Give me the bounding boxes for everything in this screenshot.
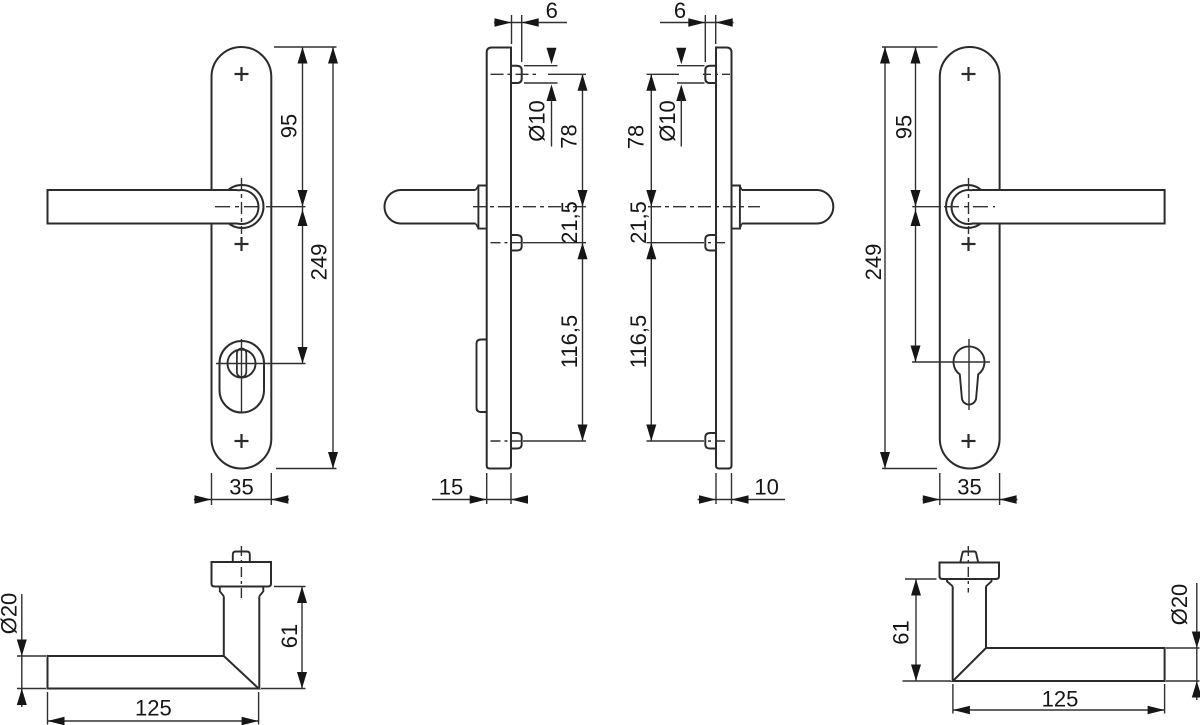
svg-text:78: 78 [556,124,581,148]
svg-text:35: 35 [229,474,253,499]
svg-text:116,5: 116,5 [626,315,651,368]
svg-text:Ø10: Ø10 [525,100,550,142]
svg-text:Ø20: Ø20 [1167,584,1192,626]
svg-text:61: 61 [888,620,913,644]
svg-text:95: 95 [891,115,916,139]
svg-text:10: 10 [754,474,778,499]
svg-text:35: 35 [957,474,981,499]
svg-text:125: 125 [1042,686,1079,711]
svg-text:Ø10: Ø10 [655,100,680,142]
svg-text:116,5: 116,5 [557,315,582,368]
svg-text:249: 249 [861,244,886,281]
svg-text:21,5: 21,5 [557,201,582,244]
svg-text:6: 6 [674,0,686,23]
svg-text:249: 249 [306,244,331,281]
svg-text:95: 95 [276,114,301,138]
svg-text:6: 6 [546,0,558,23]
svg-text:125: 125 [135,695,172,720]
svg-text:61: 61 [277,624,302,648]
svg-text:Ø20: Ø20 [0,593,21,635]
svg-text:78: 78 [623,125,648,149]
svg-text:21,5: 21,5 [626,201,651,244]
svg-text:15: 15 [439,474,463,499]
